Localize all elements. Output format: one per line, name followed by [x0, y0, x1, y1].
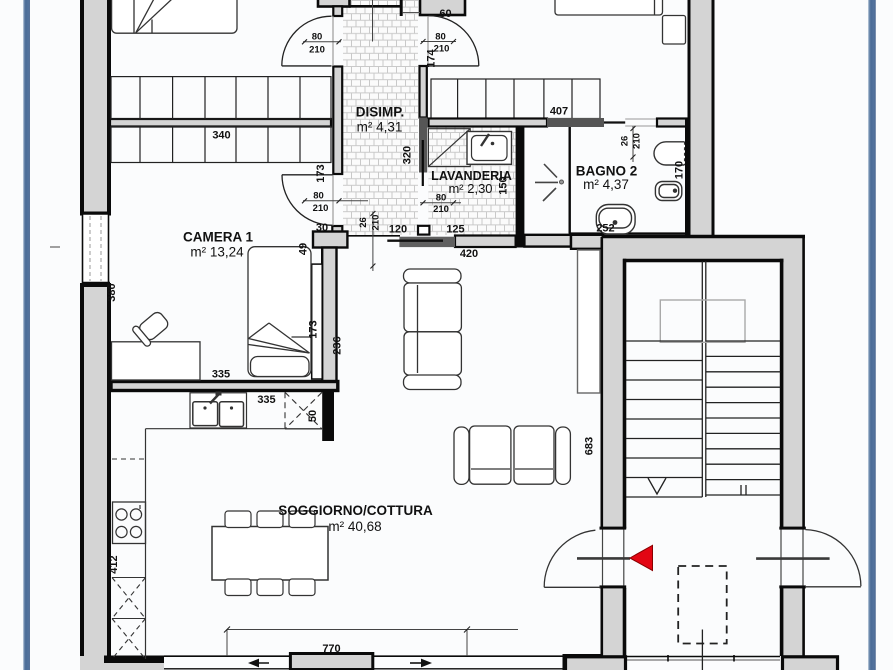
svg-text:m² 2,30: m² 2,30: [448, 181, 492, 196]
svg-text:120: 120: [389, 224, 407, 236]
svg-text:420: 420: [460, 248, 478, 260]
svg-text:m² 13,24: m² 13,24: [190, 245, 244, 260]
svg-text:770: 770: [322, 643, 340, 655]
svg-text:m² 4,31: m² 4,31: [357, 120, 403, 135]
svg-text:320: 320: [402, 146, 414, 164]
svg-text:m² 40,68: m² 40,68: [328, 519, 381, 534]
svg-text:80: 80: [312, 32, 323, 43]
svg-text:125: 125: [446, 224, 464, 236]
svg-text:SOGGIORNO/COTTURA: SOGGIORNO/COTTURA: [278, 503, 433, 518]
svg-text:412: 412: [108, 555, 120, 573]
svg-text:173: 173: [315, 164, 327, 182]
svg-text:210: 210: [313, 203, 329, 214]
svg-text:80: 80: [435, 32, 446, 43]
svg-text:380: 380: [106, 283, 118, 301]
svg-text:80: 80: [436, 193, 447, 204]
svg-text:236: 236: [332, 336, 344, 354]
svg-text:340: 340: [212, 130, 230, 142]
svg-text:210: 210: [309, 45, 325, 56]
svg-text:26: 26: [358, 217, 369, 228]
svg-text:210: 210: [632, 133, 643, 149]
svg-text:335: 335: [212, 369, 230, 381]
svg-text:252: 252: [596, 223, 614, 235]
svg-text:60: 60: [439, 8, 451, 20]
svg-text:30: 30: [316, 222, 328, 234]
svg-text:50: 50: [307, 410, 319, 422]
svg-text:683: 683: [584, 437, 596, 455]
svg-text:m² 4,37: m² 4,37: [583, 177, 629, 192]
svg-text:CAMERA 1: CAMERA 1: [183, 230, 253, 245]
svg-text:49: 49: [298, 243, 310, 255]
svg-text:210: 210: [433, 204, 449, 215]
svg-text:150: 150: [498, 176, 510, 194]
svg-text:335: 335: [257, 394, 275, 406]
svg-text:DISIMP.: DISIMP.: [356, 105, 405, 120]
svg-text:210: 210: [371, 215, 382, 231]
svg-text:173: 173: [308, 320, 320, 338]
svg-text:170: 170: [674, 161, 686, 179]
svg-text:80: 80: [313, 191, 324, 202]
svg-text:407: 407: [550, 106, 568, 118]
svg-text:174: 174: [426, 48, 438, 67]
svg-text:26: 26: [620, 136, 631, 147]
